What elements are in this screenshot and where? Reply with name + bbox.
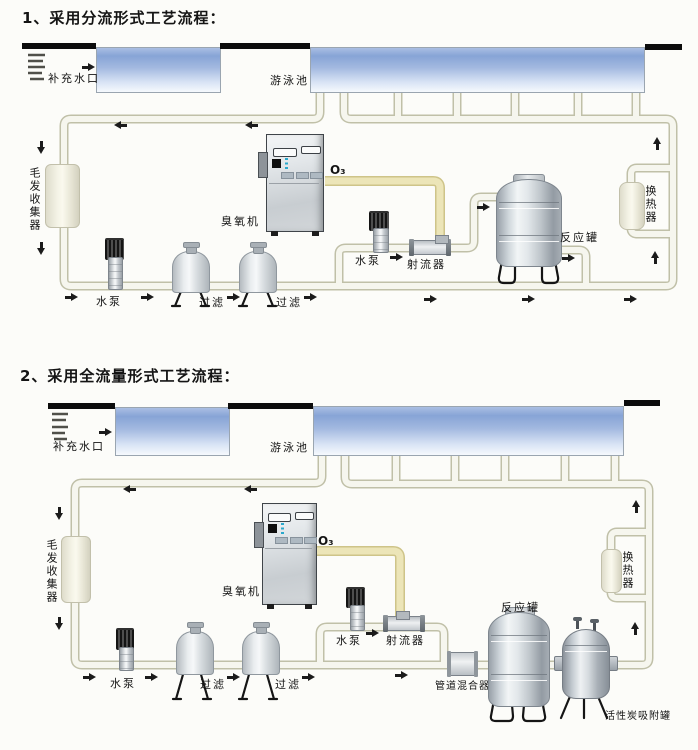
carbon-tank-fitting xyxy=(590,619,599,623)
flow-arrow-icon xyxy=(624,295,637,304)
ejector xyxy=(384,616,424,631)
flow-arrow-icon xyxy=(37,141,46,154)
tank-rib xyxy=(491,674,547,681)
hair-collector-label: 毛发收集器 xyxy=(28,167,41,232)
filter-tank xyxy=(172,251,210,293)
pool-deck xyxy=(645,44,682,50)
flow-arrow-icon xyxy=(65,293,78,302)
flow-arrow-icon xyxy=(390,253,403,262)
pool-label: 游泳池 xyxy=(270,72,309,88)
flow-arrow-icon xyxy=(302,673,315,682)
mixer-flange xyxy=(474,651,478,677)
flow-arrow-icon xyxy=(141,293,154,302)
ejector-flange xyxy=(383,615,388,632)
heat-exchanger xyxy=(619,182,645,230)
machine-panel-slot xyxy=(268,513,291,522)
flow-arrow-icon xyxy=(82,63,95,72)
carbon-tank-fitting xyxy=(576,620,579,629)
flow-arrow-icon xyxy=(395,671,408,680)
machine-handle xyxy=(254,522,264,548)
ozone-gas-label: O₃ xyxy=(318,534,333,548)
ejector-flange xyxy=(420,615,425,632)
flow-arrow-icon xyxy=(632,500,641,513)
filter-label: 过滤 xyxy=(199,294,225,310)
pump-label: 水泵 xyxy=(336,632,362,648)
machine-foot xyxy=(312,231,319,236)
carbon-tank-label: 活性炭吸附罐 xyxy=(605,707,671,722)
balance-tank-water xyxy=(115,407,230,456)
hair-collector-label: 毛发收集器 xyxy=(45,539,58,604)
carbon-tank xyxy=(562,629,610,699)
flow-arrow-icon xyxy=(424,295,437,304)
tank-rib xyxy=(565,645,607,652)
page: 1、采用分流形式工艺流程： 补充水口 游泳池 毛发收集器 臭氧机 O₃ xyxy=(0,0,698,750)
filter-top-valve-bar xyxy=(253,622,270,628)
carbon-tank-fitting xyxy=(573,617,582,621)
makeup-inlet-label: 补充水口 xyxy=(48,70,100,86)
ejector xyxy=(410,240,450,255)
flow-arrow-icon xyxy=(114,121,127,130)
filter-label: 过滤 xyxy=(200,676,226,692)
filter-label: 过滤 xyxy=(275,676,301,692)
pump-label: 水泵 xyxy=(355,252,381,268)
balance-tank-water xyxy=(96,47,221,93)
flow-arrow-icon xyxy=(244,485,257,494)
ozone-machine xyxy=(266,134,324,232)
ozone-machine xyxy=(262,503,317,605)
machine-panel-vent xyxy=(310,172,323,179)
filter-top-valve-bar xyxy=(250,242,267,248)
diagram2-title: 2、采用全流量形式工艺流程： xyxy=(20,365,239,386)
pool-deck xyxy=(624,400,660,406)
filter-top-valve-bar xyxy=(183,242,200,248)
ejector-label: 射流器 xyxy=(386,632,425,648)
pool-deck xyxy=(48,403,115,409)
flow-arrow-icon xyxy=(651,251,660,264)
flow-arrow-icon xyxy=(99,428,112,437)
machine-panel-slot xyxy=(273,148,297,157)
filter-label: 过滤 xyxy=(276,294,302,310)
machine-foot xyxy=(267,604,274,609)
diagram1-title: 1、采用分流形式工艺流程： xyxy=(22,7,225,28)
machine-panel-slot xyxy=(295,512,314,520)
flow-arrow-icon xyxy=(522,295,535,304)
tank-rib xyxy=(491,635,547,642)
reaction-tank xyxy=(496,179,562,267)
ejector-label: 射流器 xyxy=(407,256,446,272)
flow-arrow-icon xyxy=(304,293,317,302)
reaction-tank xyxy=(488,612,550,707)
flow-arrow-icon xyxy=(55,507,64,520)
pool-water xyxy=(310,47,645,93)
ozone-gas-label: O₃ xyxy=(330,163,345,177)
ozone-machine-label: 臭氧机 xyxy=(221,213,260,229)
tank-rib xyxy=(499,202,559,209)
filter-tank xyxy=(176,631,214,675)
pool-label: 游泳池 xyxy=(270,439,309,455)
flow-arrow-icon xyxy=(245,121,258,130)
machine-foot xyxy=(271,231,278,236)
machine-panel-vent xyxy=(304,537,317,544)
heat-exchanger-label: 换热器 xyxy=(621,551,634,590)
flow-arrow-icon xyxy=(562,254,575,263)
flow-arrow-icon xyxy=(145,673,158,682)
machine-panel-vent xyxy=(290,537,303,544)
pool-water xyxy=(313,406,624,456)
pump-label: 水泵 xyxy=(110,675,136,691)
pump-body xyxy=(119,647,134,671)
ejector-tee xyxy=(435,235,449,244)
ejector-flange xyxy=(409,239,414,256)
machine-panel-vent xyxy=(281,172,294,179)
flow-arrow-icon xyxy=(83,673,96,682)
machine-panel-line xyxy=(269,183,319,184)
heat-exchanger-label: 换热器 xyxy=(644,185,657,224)
machine-handle xyxy=(258,152,268,178)
flow-arrow-icon xyxy=(653,137,662,150)
flow-arrow-icon xyxy=(55,617,64,630)
machine-power-button xyxy=(272,159,281,168)
reaction-tank-label: 反应罐 xyxy=(560,229,599,245)
flow-arrow-icon xyxy=(227,293,240,302)
mixer-flange xyxy=(447,651,451,677)
filter-tank xyxy=(242,631,280,675)
pipe-mixer-label: 管道混合器 xyxy=(435,677,490,692)
heat-exchanger xyxy=(601,549,622,593)
pump-body xyxy=(373,228,389,253)
machine-foot xyxy=(305,604,312,609)
flow-arrow-icon xyxy=(227,673,240,682)
hair-collector xyxy=(45,164,80,228)
tank-rib xyxy=(499,235,559,242)
pool-deck xyxy=(22,43,96,49)
machine-indicator-leds xyxy=(285,158,288,171)
flow-arrow-icon xyxy=(477,203,490,212)
ejector-tee xyxy=(396,611,410,620)
filter-top-valve-bar xyxy=(187,622,204,628)
hair-collector xyxy=(61,536,91,603)
makeup-inlet-label: 补充水口 xyxy=(53,438,105,454)
flow-arrow-icon xyxy=(366,629,379,638)
flow-arrow-icon xyxy=(123,485,136,494)
pool-deck xyxy=(220,43,310,49)
machine-panel-vent xyxy=(296,172,309,179)
flow-arrow-icon xyxy=(631,622,640,635)
flow-arrow-icon xyxy=(37,242,46,255)
machine-panel-line xyxy=(265,548,312,549)
pump-label: 水泵 xyxy=(96,293,122,309)
machine-panel-slot xyxy=(301,146,321,154)
filter-tank xyxy=(239,251,277,293)
reaction-tank-label: 反应罐 xyxy=(501,599,540,615)
pump-body xyxy=(350,605,365,631)
pipe-mixer xyxy=(449,652,476,676)
machine-power-button xyxy=(268,524,277,533)
pool-deck xyxy=(228,403,313,409)
pump-body xyxy=(108,257,123,290)
machine-indicator-leds xyxy=(281,523,284,536)
machine-panel-vent xyxy=(275,537,288,544)
ozone-machine-label: 臭氧机 xyxy=(222,583,261,599)
